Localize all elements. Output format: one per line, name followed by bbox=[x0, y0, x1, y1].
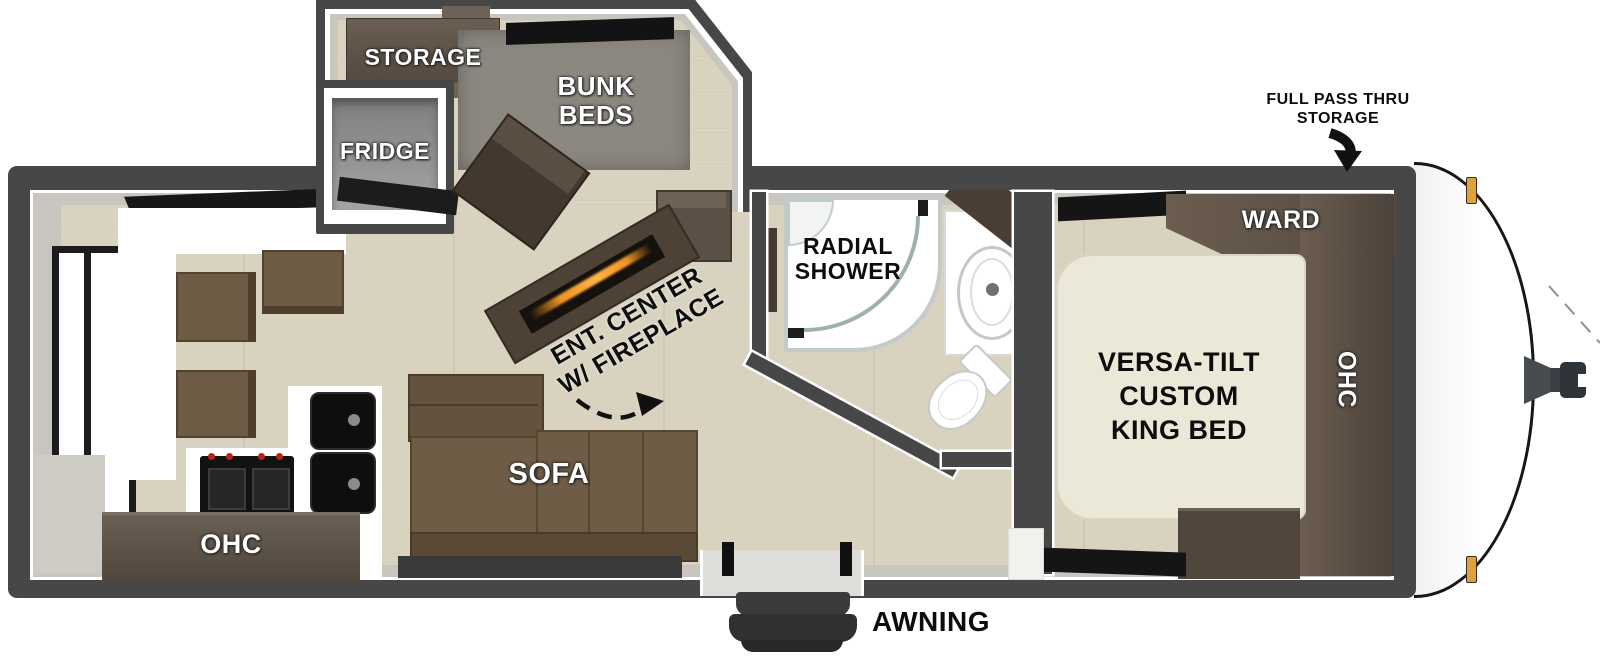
sofa-seam bbox=[410, 404, 538, 406]
bunk-beds-line1: BUNK bbox=[526, 72, 666, 101]
sofa-seam bbox=[642, 432, 644, 532]
kitchen-ohc-label: OHC bbox=[102, 529, 360, 560]
entry-step bbox=[741, 640, 843, 652]
stove-knob bbox=[226, 453, 233, 460]
fridge-label: FRIDGE bbox=[322, 138, 448, 165]
pass-thru-arrow bbox=[1330, 133, 1351, 156]
breakaway-cable bbox=[1549, 286, 1600, 343]
kitchen-counter-left bbox=[118, 208, 176, 480]
sofa-slide-rail bbox=[398, 556, 682, 578]
sofa-chaise-back bbox=[408, 374, 544, 442]
king-bed-label: VERSA-TILT CUSTOM KING BED bbox=[1064, 346, 1294, 447]
kitchen-sink bbox=[310, 392, 376, 514]
floorplan-canvas: OHC SOFA AWNING STORAGE BUNK BEDS FRI bbox=[0, 0, 1600, 661]
shower-hinge bbox=[918, 200, 928, 216]
bunk-beds-label: BUNK BEDS bbox=[526, 72, 666, 129]
door-bracket bbox=[722, 542, 734, 576]
stove-knob bbox=[208, 453, 215, 460]
storage-label: STORAGE bbox=[338, 44, 508, 71]
stove-knob bbox=[258, 453, 265, 460]
pass-thru-line1: FULL PASS THRU bbox=[1256, 90, 1420, 109]
sink-basin bbox=[310, 392, 376, 450]
entry-step bbox=[736, 592, 850, 616]
king-bed-line2: CUSTOM bbox=[1064, 380, 1294, 414]
king-bed-line3: KING BED bbox=[1064, 414, 1294, 448]
kitchen-walkway bbox=[33, 455, 105, 573]
toilet-seat-line bbox=[930, 371, 987, 428]
sink-drain bbox=[348, 414, 360, 426]
front-cap bbox=[1414, 162, 1535, 598]
stove-burner bbox=[252, 468, 290, 510]
bed-foot-cabinet bbox=[1178, 508, 1300, 579]
fridge-compartment: FRIDGE bbox=[316, 80, 454, 234]
dinette-chair bbox=[262, 250, 344, 314]
hitch-a-frame bbox=[1524, 356, 1552, 404]
sink-drain bbox=[348, 478, 360, 490]
stove-burner bbox=[208, 468, 246, 510]
bunk-beds-line2: BEDS bbox=[526, 101, 666, 130]
radial-shower-line1: RADIAL bbox=[762, 234, 934, 259]
radial-shower-line2: SHOWER bbox=[762, 259, 934, 284]
bedroom-partition-wall bbox=[1014, 192, 1052, 574]
door-bracket bbox=[840, 542, 852, 576]
awning-label: AWNING bbox=[850, 606, 1012, 638]
bathroom-wall-bottom bbox=[942, 452, 1020, 467]
sink-faucet bbox=[986, 283, 999, 296]
dinette-chair bbox=[176, 370, 256, 438]
pass-thru-line2: STORAGE bbox=[1256, 109, 1420, 128]
hitch-coupler-notch bbox=[1578, 374, 1587, 387]
stove-knob bbox=[276, 453, 283, 460]
bedroom-step bbox=[1008, 528, 1044, 580]
marker-light-top bbox=[1466, 177, 1477, 204]
shower-hinge bbox=[788, 328, 804, 338]
ward-label: WARD bbox=[1216, 206, 1346, 235]
marker-light-bottom bbox=[1466, 556, 1477, 583]
bathroom-wall-left bbox=[752, 192, 766, 360]
bathroom: RADIAL SHOWER bbox=[752, 190, 1054, 472]
dinette-chair bbox=[176, 272, 256, 342]
sink-basin bbox=[310, 452, 376, 514]
bedroom-ohc-label: OHC bbox=[1332, 340, 1361, 420]
stove bbox=[200, 456, 294, 516]
sofa-label: SOFA bbox=[469, 458, 629, 491]
radial-shower-label: RADIAL SHOWER bbox=[762, 234, 934, 285]
entry-step bbox=[729, 614, 857, 642]
pass-thru-label: FULL PASS THRU STORAGE bbox=[1256, 90, 1420, 128]
king-bed-line1: VERSA-TILT bbox=[1064, 346, 1294, 380]
